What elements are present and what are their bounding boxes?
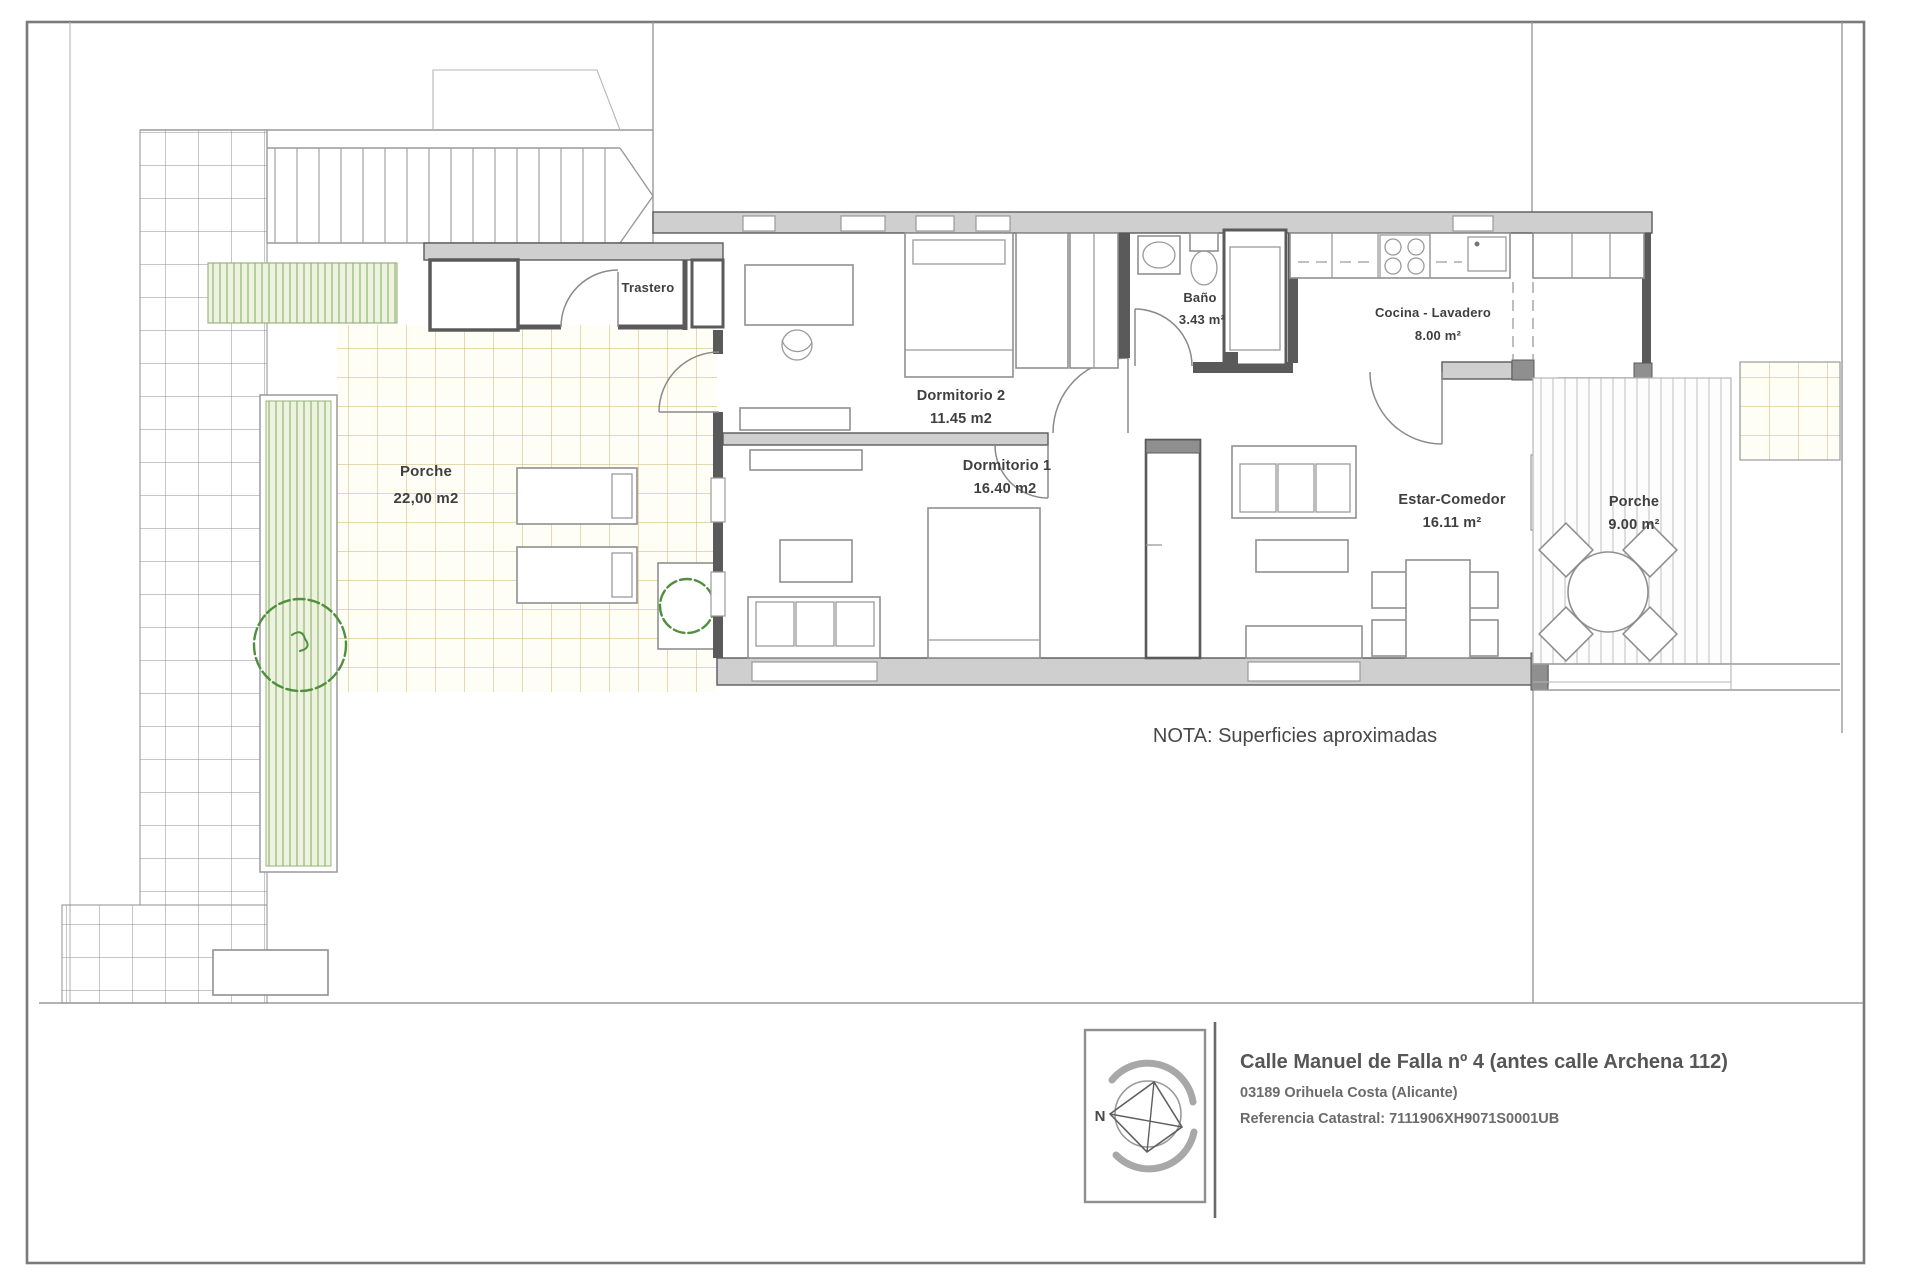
- area-porche-west: 22,00 m2: [394, 490, 459, 507]
- garden-planter-west: [254, 395, 346, 872]
- toilet-bowl: [1191, 251, 1217, 285]
- sofa-living: [1232, 446, 1356, 518]
- dining-chair-1: [1372, 572, 1408, 608]
- annex-room: [430, 260, 518, 330]
- annex-top-wall: [424, 243, 723, 260]
- shower: [1224, 230, 1286, 365]
- porch-east: [1533, 362, 1840, 690]
- sofa-dorm1: [748, 597, 880, 658]
- title-block: N Calle Manuel de Falla nº 4 (antes call…: [1085, 1022, 1728, 1218]
- west-wall-a: [713, 330, 723, 354]
- bath-west-wall: [1118, 233, 1130, 358]
- north-window-1: [743, 216, 775, 231]
- kitchen-counter-east: [1533, 233, 1644, 278]
- trastero-room: [518, 260, 687, 330]
- north-window-4: [976, 216, 1010, 231]
- label-trastero: Trastero: [622, 280, 675, 295]
- hall-wardrobe: [1146, 440, 1200, 658]
- kitchen-door-arc: [1370, 372, 1442, 444]
- note-text: NOTA: Superficies aproximadas: [1153, 725, 1437, 747]
- bench-dorm2: [740, 408, 850, 430]
- west-window-1: [711, 478, 725, 522]
- area-estar: 16.11 m²: [1423, 515, 1482, 531]
- shelf-dorm1: [750, 450, 862, 470]
- area-porche-east: 9.00 m²: [1608, 517, 1659, 533]
- trastero-door-arc: [561, 270, 618, 327]
- kitchen-fixtures: [1290, 233, 1644, 360]
- north-wall: [653, 212, 1652, 233]
- west-wall-b: [713, 412, 723, 658]
- wardrobe-dorm2-a: [1016, 233, 1068, 368]
- area-bano: 3.43 m²: [1179, 312, 1226, 327]
- annex-closet: [692, 260, 723, 327]
- west-window-2: [711, 572, 725, 616]
- porch-round-table: [1568, 552, 1648, 632]
- address-line-1: Calle Manuel de Falla nº 4 (antes calle …: [1240, 1051, 1728, 1073]
- south-window-2: [1248, 662, 1360, 681]
- kitchen-living-wall: [1442, 362, 1512, 379]
- coffee-table: [1256, 540, 1348, 572]
- desk-dorm2: [745, 265, 853, 325]
- bed-dorm2: [905, 233, 1013, 377]
- label-dorm2: Dormitorio 2: [917, 388, 1006, 404]
- floor-plan-drawing: Trastero Porche 22,00 m2 Dormitorio 2 11…: [0, 0, 1920, 1280]
- hedge-band: [208, 263, 397, 323]
- table-dorm1: [780, 540, 852, 582]
- address-line-2: 03189 Orihuela Costa (Alicante): [1240, 1085, 1458, 1101]
- area-cocina: 8.00 m²: [1415, 328, 1462, 343]
- north-window-3: [916, 216, 954, 231]
- dorm2-door-arc: [1053, 358, 1128, 433]
- label-porche-east: Porche: [1609, 494, 1659, 510]
- label-dorm1: Dormitorio 1: [963, 458, 1052, 474]
- compass-north-label: N: [1095, 1108, 1106, 1125]
- label-estar: Estar-Comedor: [1398, 492, 1505, 508]
- address-line-3: Referencia Catastral: 7111906XH9071S0001…: [1240, 1111, 1559, 1127]
- sun-lounger-2: [517, 547, 637, 603]
- garden-planter-small: [658, 563, 716, 649]
- dining-table: [1406, 560, 1470, 658]
- living-furniture: [1232, 446, 1498, 658]
- kitchen-living-pier: [1512, 360, 1534, 380]
- stair-direction-arrow: [620, 148, 653, 243]
- area-dorm1: 16.40 m2: [974, 481, 1037, 497]
- stair-treads: [267, 148, 620, 243]
- tv-sideboard: [1246, 626, 1362, 658]
- bed-dorm1: [928, 508, 1040, 658]
- south-window-1: [752, 662, 877, 681]
- floor-plan-sheet: Trastero Porche 22,00 m2 Dormitorio 2 11…: [0, 0, 1920, 1280]
- dining-chair-3: [1372, 620, 1408, 656]
- north-window-5: [1453, 216, 1493, 231]
- porch-east-tiles: [1740, 362, 1840, 460]
- sidewalk-tiles-west: [140, 130, 267, 905]
- sun-lounger-1: [517, 468, 637, 524]
- chair-dorm2: [782, 330, 812, 360]
- toilet-cistern: [1190, 233, 1218, 251]
- dining-set: [1372, 560, 1498, 658]
- area-dorm2: 11.45 m2: [930, 411, 992, 427]
- bedroom-divider-wall: [723, 433, 1048, 445]
- planter-box-southwest: [213, 950, 328, 995]
- north-window-2: [841, 216, 885, 231]
- label-cocina: Cocina - Lavadero: [1375, 305, 1491, 320]
- shower-jamb: [1224, 352, 1238, 365]
- trastero-annex: [424, 243, 723, 330]
- stair-upper-flight: [433, 70, 620, 130]
- label-porche-west: Porche: [400, 463, 452, 480]
- label-bano: Baño: [1183, 290, 1216, 305]
